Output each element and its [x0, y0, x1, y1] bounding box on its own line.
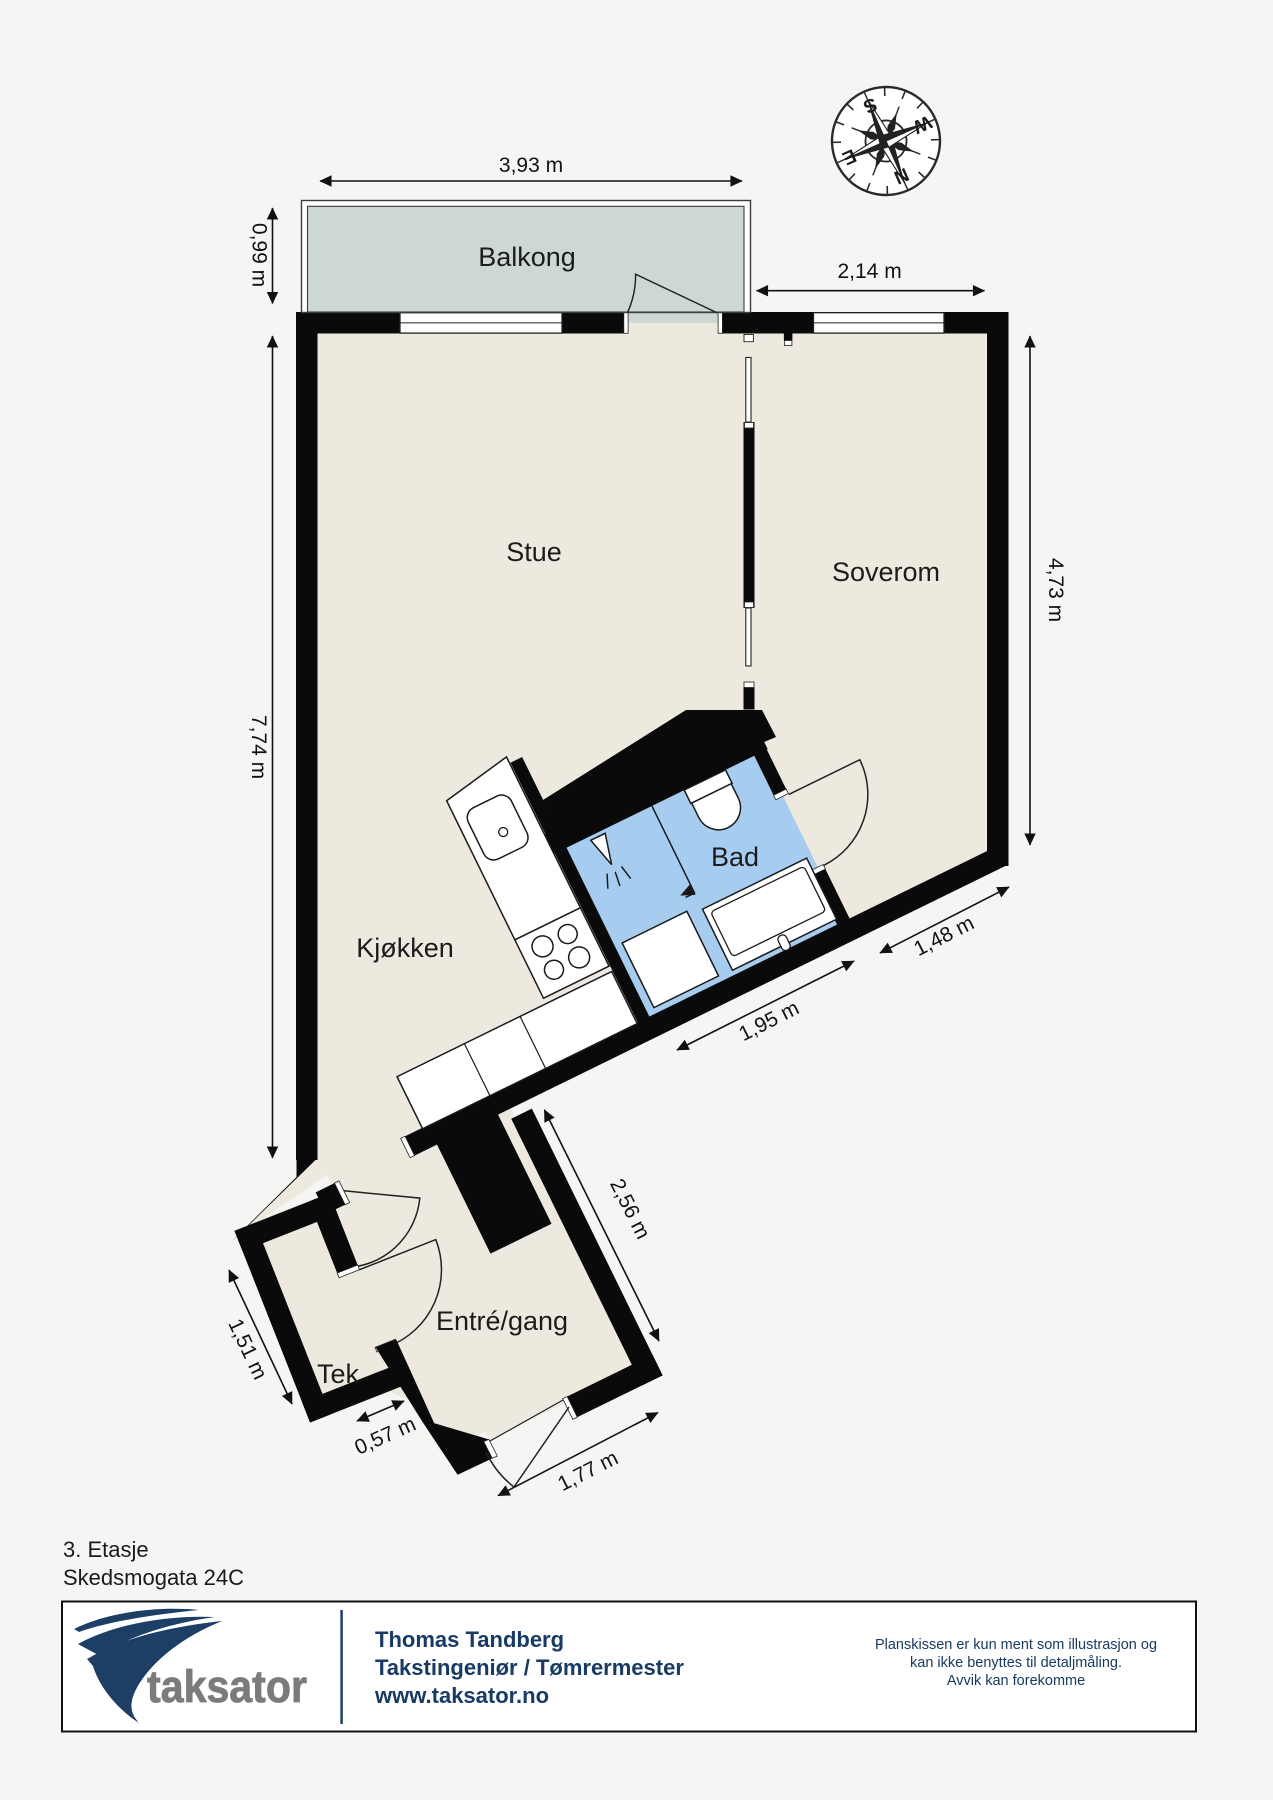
svg-text:Balkong: Balkong: [478, 242, 576, 272]
svg-text:kan ikke benyttes til detaljmå: kan ikke benyttes til detaljmåling.: [910, 1655, 1122, 1671]
svg-text:taksator: taksator: [147, 1661, 307, 1712]
svg-text:Tek: Tek: [317, 1359, 360, 1389]
svg-text:Avvik kan forekomme: Avvik kan forekomme: [947, 1673, 1085, 1689]
svg-text:Stue: Stue: [506, 537, 562, 567]
svg-text:3. Etasje: 3. Etasje: [63, 1537, 149, 1562]
svg-text:2,14 m: 2,14 m: [837, 260, 901, 283]
svg-text:Planskissen er kun ment som il: Planskissen er kun ment som illustrasjon…: [875, 1637, 1157, 1653]
svg-text:3,93 m: 3,93 m: [499, 154, 563, 177]
svg-text:www.taksator.no: www.taksator.no: [374, 1683, 549, 1708]
svg-text:Takstingeniør / Tømrermester: Takstingeniør / Tømrermester: [375, 1655, 684, 1680]
svg-text:Skedsmogata 24C: Skedsmogata 24C: [63, 1565, 244, 1590]
svg-text:Kjøkken: Kjøkken: [356, 933, 454, 963]
svg-text:7,74 m: 7,74 m: [247, 715, 270, 779]
svg-text:Thomas Tandberg: Thomas Tandberg: [375, 1627, 564, 1652]
svg-text:Soverom: Soverom: [832, 557, 940, 587]
svg-text:Bad: Bad: [711, 842, 759, 872]
svg-text:4,73 m: 4,73 m: [1044, 558, 1067, 622]
svg-text:Entré/gang: Entré/gang: [436, 1306, 568, 1336]
svg-text:0,99 m: 0,99 m: [247, 223, 270, 287]
